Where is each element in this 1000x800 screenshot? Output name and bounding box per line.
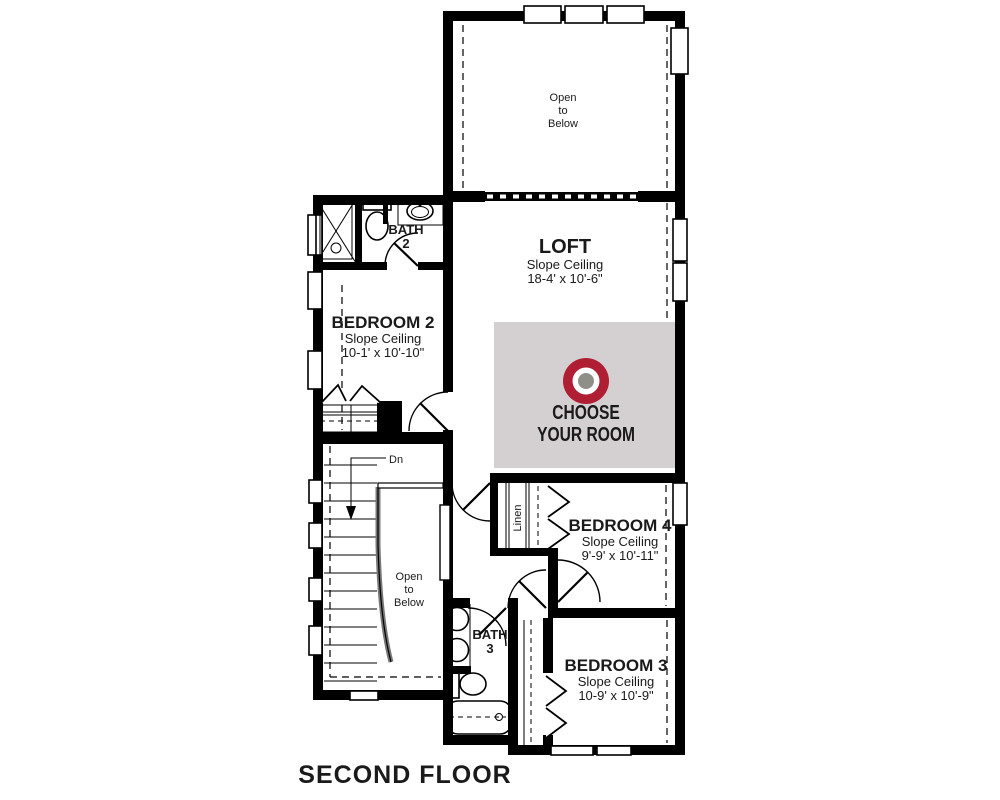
wall-segment	[443, 11, 453, 201]
stairs: Dn	[324, 454, 450, 681]
window	[308, 351, 322, 389]
linen-closet: Linen	[506, 483, 569, 549]
wall-segment	[548, 548, 558, 610]
window	[524, 6, 561, 23]
bedroom2-closet	[320, 385, 383, 432]
wall-segment	[638, 191, 685, 202]
bifold-door	[548, 486, 569, 517]
floorplan-canvas: Dn	[0, 0, 1000, 800]
sink-faucet	[446, 615, 450, 623]
wall-segment	[313, 690, 453, 700]
baluster	[617, 195, 623, 199]
open-below-stairs-l1: Open	[396, 571, 423, 583]
bedroom2-label: BEDROOM 2	[332, 313, 435, 332]
window	[350, 691, 378, 700]
open-below-stairs-l2: to	[404, 584, 413, 596]
bedroom3-dims-label: 10-9' x 10'-9"	[578, 688, 654, 703]
promo-line1: CHOOSE	[552, 401, 620, 423]
bath2-fixtures	[316, 198, 443, 263]
bath3-number: 3	[486, 641, 493, 656]
wall-segment	[490, 473, 685, 483]
bifold-door	[546, 708, 566, 738]
wall-segment	[443, 598, 470, 608]
window	[565, 6, 603, 23]
window	[309, 626, 322, 655]
bedroom2-dims-label: 10-1' x 10'-10"	[342, 345, 425, 360]
bedroom2-ceiling-label: Slope Ceiling	[345, 331, 422, 346]
window	[597, 746, 631, 755]
bifold-door	[546, 676, 566, 706]
stair-opening-railing	[378, 483, 443, 488]
wall-segment	[490, 483, 498, 550]
door-leaf	[519, 581, 546, 608]
baluster	[513, 195, 519, 199]
promo-line2: YOUR ROOM	[537, 423, 635, 445]
toilet-fixture	[460, 673, 486, 695]
bifold-door	[548, 519, 569, 549]
loft-label: LOFT	[539, 236, 591, 258]
window	[673, 263, 687, 301]
window	[673, 483, 687, 525]
sink-faucet	[446, 646, 450, 654]
target-icon	[563, 358, 609, 404]
baluster	[591, 195, 597, 199]
window	[308, 272, 322, 309]
bath2-number: 2	[402, 236, 409, 251]
open-below-top-l2: to	[558, 105, 567, 117]
open-below-top-l3: Below	[548, 118, 578, 130]
wall-segment	[443, 11, 685, 21]
window	[551, 746, 593, 755]
bedroom3-label: BEDROOM 3	[565, 656, 668, 675]
baluster	[552, 195, 558, 199]
floor-title: SECOND FLOOR	[298, 761, 511, 789]
wall-segment	[313, 432, 453, 444]
wall-segment	[313, 195, 323, 700]
bath3-label: BATH	[472, 627, 507, 642]
door-leaf	[463, 483, 490, 510]
target-center-dot	[578, 373, 594, 389]
stair-railing-curve	[378, 487, 391, 662]
wall-segment	[490, 548, 555, 556]
choose-your-room-badge[interactable]: CHOOSE YOUR ROOM	[494, 322, 675, 468]
wall-segment	[548, 608, 685, 618]
linen-label: Linen	[512, 505, 524, 532]
window	[309, 480, 322, 503]
baluster	[487, 195, 493, 199]
bifold-door	[350, 386, 381, 403]
baluster	[565, 195, 571, 199]
baluster	[604, 195, 610, 199]
wall-segment	[543, 618, 553, 673]
window	[309, 578, 322, 601]
railing-balusters	[483, 192, 640, 201]
wall-segment	[418, 262, 443, 270]
bath3-fixtures	[445, 604, 512, 734]
loft-ceiling-label: Slope Ceiling	[527, 257, 604, 272]
window	[671, 28, 688, 74]
stair-direction-arrow	[346, 506, 356, 520]
loft-dims-label: 18-4' x 10'-6"	[527, 271, 603, 286]
baluster	[500, 195, 506, 199]
baluster	[526, 195, 532, 199]
wall-segment	[443, 201, 453, 392]
bedroom3-ceiling-label: Slope Ceiling	[578, 674, 655, 689]
bath2-label: BATH	[388, 222, 423, 237]
floorplan-drawing: Dn	[0, 0, 1000, 800]
door-leaf	[558, 572, 588, 602]
baluster	[539, 195, 545, 199]
stairs-dn-label: Dn	[389, 454, 403, 466]
sink-basin	[412, 207, 429, 218]
door-leaf	[420, 403, 448, 431]
bedroom4-label: BEDROOM 4	[569, 516, 673, 535]
wall-segment	[443, 735, 518, 745]
wall-segment	[377, 401, 402, 432]
baluster	[630, 195, 636, 199]
bedroom4-ceiling-label: Slope Ceiling	[582, 534, 659, 549]
railing-band	[483, 192, 640, 201]
shower-drain	[331, 243, 341, 253]
bedroom4-dims-label: 9'-9' x 10'-11"	[582, 548, 659, 563]
open-below-stairs-l3: Below	[394, 597, 424, 609]
toilet-fixture	[366, 212, 388, 240]
stairwell-railing-panel	[440, 505, 450, 580]
window	[673, 219, 687, 261]
open-below-top-l1: Open	[550, 92, 577, 104]
window	[309, 523, 322, 548]
wall-segment	[508, 598, 518, 755]
baluster	[578, 195, 584, 199]
window	[607, 6, 644, 23]
sink-faucet	[418, 202, 422, 206]
